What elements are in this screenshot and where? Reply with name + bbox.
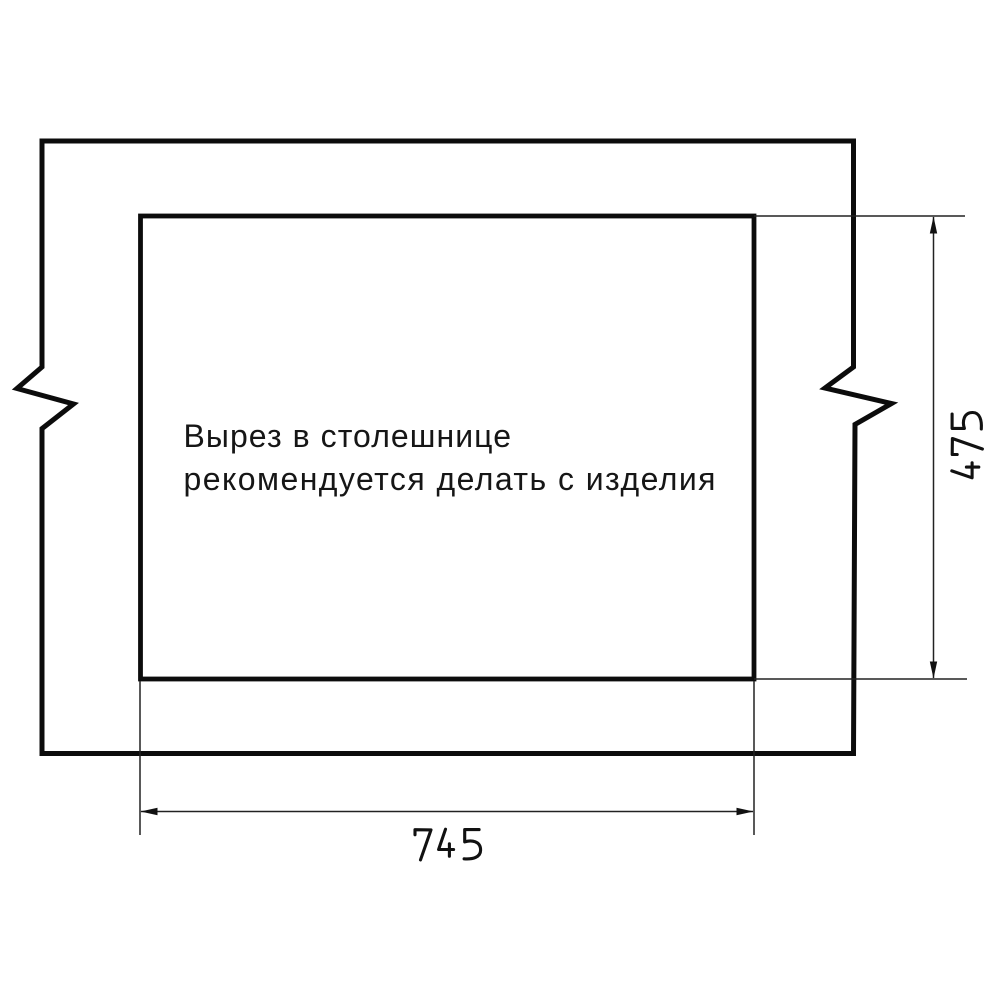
svg-text:Вырез в столешнице: Вырез в столешнице	[184, 418, 512, 454]
svg-text:рекомендуется делать с изделия: рекомендуется делать с изделия	[184, 461, 716, 497]
